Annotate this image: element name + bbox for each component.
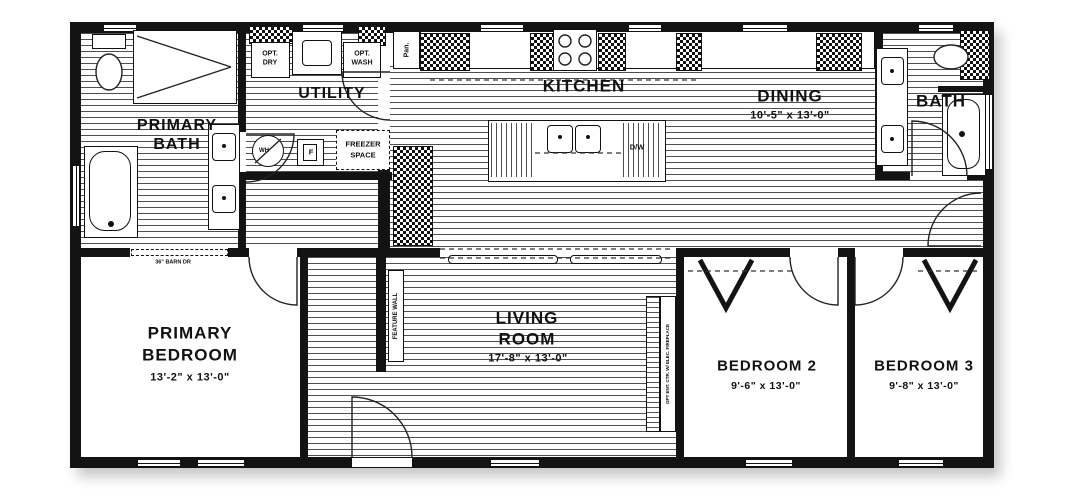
dining-label: DINING	[757, 88, 823, 105]
wall-feature	[376, 257, 386, 372]
wall-mid-seg3	[297, 248, 440, 257]
kitchen-counter	[420, 31, 875, 69]
island-cabinet-left	[491, 123, 533, 177]
window-top-1	[103, 24, 137, 32]
island-faucet-2	[586, 135, 590, 139]
primary-bedroom-label-1: PRIMARY	[148, 325, 233, 342]
tub-primary-basin	[89, 151, 131, 231]
opt-dry-label-2: DRY	[263, 60, 278, 67]
bath-label: BATH	[916, 93, 966, 110]
wall-utility-bottom	[238, 172, 392, 180]
bath-cabinet	[960, 30, 990, 80]
vanity-primary	[208, 124, 240, 230]
pantry-label: Pan.	[404, 43, 411, 58]
tub-primary-drain	[108, 221, 114, 227]
wall-outer-left	[70, 22, 81, 468]
bedroom3-dims: 9'-8" x 13'-0"	[889, 381, 959, 392]
window-bottom-5	[898, 459, 944, 467]
opt-wash-label-2: WASH	[352, 60, 373, 67]
wall-mid-seg2	[228, 248, 249, 257]
freezer-space-label-1: FREEZER	[345, 140, 380, 148]
wall-bedroom2-bedroom3	[847, 257, 855, 457]
cased-opening-1	[448, 255, 558, 264]
barn-door-label: 36" BARN DR	[155, 260, 191, 266]
dishwasher-label: D/W	[630, 143, 645, 151]
feature-wall-label: FEATURE WALL	[393, 293, 399, 340]
primary-bedroom-label-2: BEDROOM	[142, 347, 238, 364]
bedroom2-label: BEDROOM 2	[717, 359, 817, 374]
range	[553, 29, 597, 71]
window-bottom-4	[745, 459, 793, 467]
window-bottom-2	[197, 459, 245, 467]
tub-bath-drain	[959, 131, 965, 137]
utility-label: UTILITY	[298, 86, 365, 102]
opt-wash-label-1: OPT.	[354, 51, 370, 58]
kitchen-label: KITCHEN	[543, 78, 626, 95]
counter-cabinet-1	[420, 33, 470, 71]
wall-bedroom2-left	[676, 257, 684, 457]
vanity-primary-faucet-2	[222, 196, 226, 200]
wall-mid-seg6	[903, 248, 983, 257]
primary-bath-label-2: BATH	[153, 137, 200, 153]
hall-floor	[875, 180, 983, 248]
barn-door	[131, 249, 228, 256]
floor-plan: PRIMARY BATH UTILITY KITCHEN DINING 10'-…	[0, 0, 1080, 498]
wall-mid-seg5	[838, 248, 855, 257]
wall-bath-bottom-left	[875, 172, 910, 180]
window-right-1	[985, 94, 993, 170]
island-sink-left	[547, 125, 573, 153]
counter-cabinet-4	[676, 33, 702, 71]
living-room-label-1: LIVING	[496, 310, 559, 327]
shower	[133, 30, 237, 104]
wall-mid-seg4	[676, 248, 790, 257]
water-heater-label: WH	[259, 148, 269, 154]
vanity-bath-faucet-2	[890, 137, 894, 141]
bedroom2-dims: 9'-6" x 13'-0"	[731, 381, 801, 392]
counter-cabinet-3	[598, 33, 626, 71]
utility-sink	[292, 31, 342, 75]
vanity-bath	[876, 48, 908, 166]
opt-dry-label-1: OPT.	[262, 51, 278, 58]
living-room-label-2: ROOM	[499, 331, 556, 348]
vanity-bath-faucet-1	[890, 69, 894, 73]
cased-opening-2	[570, 255, 662, 264]
living-room-dims: 17'-8" x 13'-0"	[488, 354, 567, 365]
utility-sink-basin	[302, 40, 332, 66]
window-left-1	[72, 165, 80, 227]
dining-dims: 10'-5" x 13'-0"	[750, 111, 829, 122]
tub-primary	[84, 146, 138, 238]
wall-primary-bedroom-right	[300, 257, 308, 457]
entertainment-center	[646, 296, 660, 432]
primary-bedroom-dims: 13'-2" x 13'-0"	[150, 373, 229, 384]
island-faucet	[558, 135, 562, 139]
toilet-tank-primary	[92, 34, 126, 49]
window-bottom-1	[137, 459, 181, 467]
counter-cabinet-5	[816, 33, 862, 71]
wall-primarybath-utility-upper	[238, 33, 246, 132]
furnace-label: F	[309, 148, 314, 156]
freezer-space-label-2: SPACE	[350, 151, 375, 159]
window-top-6	[918, 24, 954, 32]
opt-ent-ctr-label: OPT ENT. CTR. W/ ELEC. FIREPLACE	[666, 324, 671, 404]
wall-mid-seg1	[81, 248, 130, 257]
front-door-opening	[350, 458, 414, 467]
vanity-primary-faucet-1	[222, 144, 226, 148]
window-bottom-3	[490, 459, 540, 467]
wall-outer-right	[983, 22, 994, 468]
bedroom3-label: BEDROOM 3	[874, 359, 974, 374]
island-sink-right	[575, 125, 601, 153]
primary-bath-label-1: PRIMARY	[137, 118, 217, 134]
pantry-shelving	[393, 146, 433, 246]
